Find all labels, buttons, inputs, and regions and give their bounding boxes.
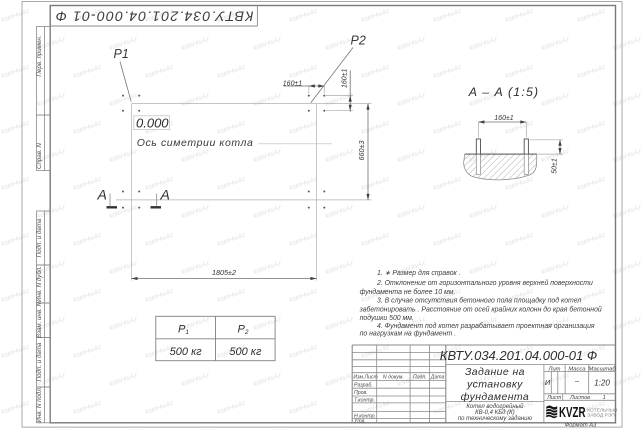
svg-text:Лист: Лист xyxy=(546,395,562,401)
svg-text:Пров.: Пров. xyxy=(354,390,368,396)
svg-text:ЗАВОД РЭП: ЗАВОД РЭП xyxy=(587,413,615,419)
svg-text:Масштаб: Масштаб xyxy=(589,366,617,372)
svg-text:Подп.: Подп. xyxy=(413,375,427,381)
svg-text:A: A xyxy=(97,187,107,203)
svg-text:фундамента: фундамента xyxy=(461,391,530,403)
svg-text:И: И xyxy=(545,378,551,387)
svg-text:160±1: 160±1 xyxy=(283,80,303,87)
svg-text:Масса: Масса xyxy=(568,366,586,372)
svg-text:по нагрузкам на фундамент .: по нагрузкам на фундамент . xyxy=(360,330,457,338)
svg-text:Лит: Лит xyxy=(547,366,560,372)
svg-text:2. Отклонение от горизонтально: 2. Отклонение от горизонтального уровня … xyxy=(376,279,593,287)
svg-text:КВТУ.034.201.04.000-01 Ф: КВТУ.034.201.04.000-01 Ф xyxy=(54,8,253,24)
svg-text:0.000: 0.000 xyxy=(136,115,169,130)
svg-text:Справ. N: Справ. N xyxy=(36,143,43,169)
svg-text:установку: установку xyxy=(466,379,523,391)
svg-text:A – A (1:5): A – A (1:5) xyxy=(468,85,540,99)
svg-text:Дата: Дата xyxy=(430,375,445,381)
svg-text:фундамента не более 10 мм.: фундамента не более 10 мм. xyxy=(360,288,456,296)
svg-text:Т.контр.: Т.контр. xyxy=(354,398,375,404)
svg-text:Подп. и дата: Подп. и дата xyxy=(36,218,43,257)
svg-text:Задание на: Задание на xyxy=(465,366,525,378)
svg-text:50±1: 50±1 xyxy=(552,158,559,174)
svg-text:500 кг: 500 кг xyxy=(170,346,203,358)
svg-text:Подп. и дата: Подп. и дата xyxy=(36,342,43,381)
svg-text:Ось симетрии котла: Ось симетрии котла xyxy=(137,137,254,149)
svg-text:Взам. инв. N: Взам. инв. N xyxy=(36,301,43,338)
svg-text:160±1: 160±1 xyxy=(342,68,349,88)
svg-text:1. ∗ Размер для справок .: 1. ∗ Размер для справок . xyxy=(377,269,461,277)
svg-text:1805±2: 1805±2 xyxy=(212,268,236,277)
svg-text:500 кг: 500 кг xyxy=(229,346,262,358)
svg-text:1: 1 xyxy=(603,395,606,401)
svg-text:4. Фундамент под котел разраба: 4. Фундамент под котел разрабатывает про… xyxy=(377,322,595,330)
svg-text:N докум.: N докум. xyxy=(383,375,404,381)
svg-text:подушки 500 мм.: подушки 500 мм. xyxy=(360,314,414,322)
svg-text:A: A xyxy=(160,187,170,203)
svg-text:Инв. N дубл.: Инв. N дубл. xyxy=(36,266,43,302)
svg-text:3. В случае отсутствия бетонно: 3. В случае отсутствия бетонного пола пл… xyxy=(377,297,581,305)
svg-text:КВ-0,4 КБд (К): КВ-0,4 КБд (К) xyxy=(475,410,515,416)
svg-text:Утв.: Утв. xyxy=(354,418,366,424)
svg-text:160±1: 160±1 xyxy=(494,115,514,122)
svg-text:Изм.Лист: Изм.Лист xyxy=(353,374,378,380)
svg-text:P1: P1 xyxy=(114,47,129,61)
svg-text:KVZR: KVZR xyxy=(559,405,586,421)
svg-text:660±3: 660±3 xyxy=(357,141,366,161)
svg-text:Разраб.: Разраб. xyxy=(354,382,373,388)
svg-text:КВТУ.034.201.04.000-01 Ф: КВТУ.034.201.04.000-01 Ф xyxy=(440,348,597,363)
svg-text:P2: P2 xyxy=(351,34,366,48)
svg-text:Инв. N подл.: Инв. N подл. xyxy=(36,386,43,422)
svg-text:1:20: 1:20 xyxy=(594,378,610,387)
svg-text:–: – xyxy=(574,377,580,386)
svg-text:Перв. примен.: Перв. примен. xyxy=(36,35,43,76)
svg-text:забетонировать . Расстояние от: забетонировать . Расстояние от осей край… xyxy=(359,305,602,313)
svg-text:по техническому заданию: по техническому заданию xyxy=(458,416,533,422)
svg-text:Листов: Листов xyxy=(569,395,590,401)
svg-text:Формат А3: Формат А3 xyxy=(565,423,597,429)
